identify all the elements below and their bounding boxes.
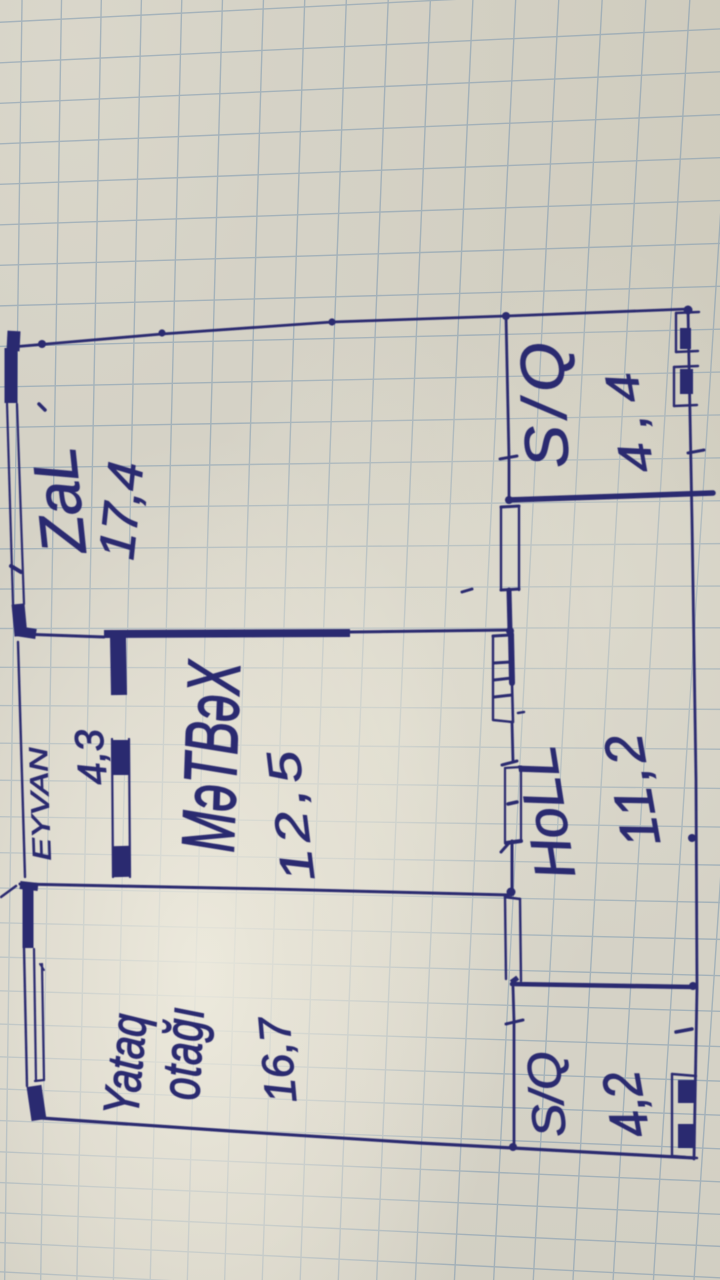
svg-text:4,2: 4,2 bbox=[591, 1067, 661, 1143]
svg-text:ZaL: ZaL bbox=[20, 444, 100, 559]
svg-text:MəTBəX: MəTBəX bbox=[167, 658, 256, 854]
svg-text:S/Q: S/Q bbox=[507, 332, 582, 470]
svg-text:17,4: 17,4 bbox=[88, 459, 154, 562]
svg-text:4,3: 4,3 bbox=[67, 728, 116, 787]
svg-text:16,7: 16,7 bbox=[250, 1014, 306, 1105]
svg-text:otağı: otağı bbox=[151, 1004, 216, 1101]
svg-text:S/Q: S/Q bbox=[518, 1049, 576, 1139]
svg-text:EYVAN: EYVAN bbox=[25, 747, 57, 862]
svg-text:Yataq: Yataq bbox=[93, 1012, 158, 1118]
